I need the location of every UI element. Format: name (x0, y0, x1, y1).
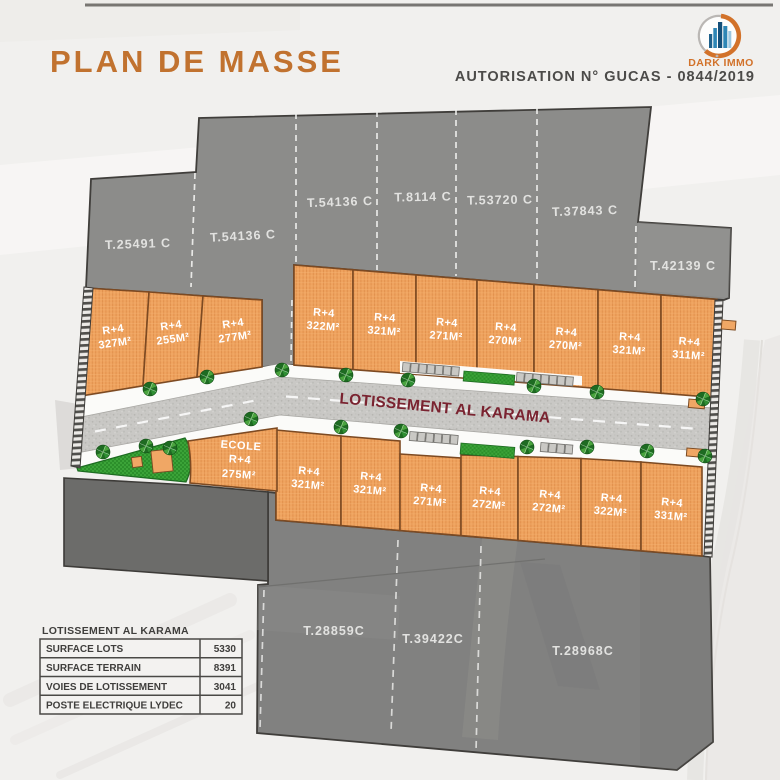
svg-text:R+4: R+4 (555, 326, 578, 340)
svg-text:R+4: R+4 (374, 311, 397, 325)
svg-text:R+4: R+4 (313, 307, 336, 321)
svg-text:271M²: 271M² (429, 329, 463, 343)
svg-text:R+4: R+4 (420, 482, 443, 496)
svg-text:275M²: 275M² (221, 468, 256, 482)
svg-text:T.8114 C: T.8114 C (394, 190, 452, 205)
svg-text:T.42139 C: T.42139 C (650, 259, 716, 273)
svg-text:T.39422C: T.39422C (402, 632, 464, 646)
svg-text:T.54136 C: T.54136 C (307, 194, 373, 210)
svg-text:AUTORISATION N° GUCAS - 0844/2: AUTORISATION N° GUCAS - 0844/2019 (455, 69, 755, 85)
svg-text:T.28968C: T.28968C (552, 644, 614, 658)
svg-text:270M²: 270M² (549, 339, 583, 353)
svg-text:R+4: R+4 (479, 485, 502, 499)
svg-text:321M²: 321M² (612, 344, 646, 358)
svg-text:R+4: R+4 (661, 496, 684, 510)
svg-text:R+4: R+4 (619, 331, 642, 345)
svg-text:VOIES DE LOTISSEMENT: VOIES DE LOTISSEMENT (46, 682, 167, 693)
svg-text:R+4: R+4 (228, 453, 251, 467)
svg-text:PLAN DE MASSE: PLAN DE MASSE (50, 44, 344, 79)
svg-text:SURFACE LOTS: SURFACE LOTS (46, 644, 124, 655)
svg-text:T.53720 C: T.53720 C (467, 192, 533, 207)
svg-text:311M²: 311M² (672, 349, 705, 363)
svg-text:DARK IMMO: DARK IMMO (688, 57, 753, 69)
svg-text:R+4: R+4 (678, 335, 701, 349)
svg-text:T.28859C: T.28859C (303, 624, 365, 638)
svg-text:20: 20 (225, 701, 237, 712)
svg-text:LOTISSEMENT AL KARAMA: LOTISSEMENT AL KARAMA (42, 625, 189, 637)
svg-text:R+4: R+4 (600, 492, 623, 506)
svg-text:T.25491 C: T.25491 C (105, 236, 171, 252)
svg-text:322M²: 322M² (306, 320, 340, 334)
svg-text:321M²: 321M² (367, 324, 401, 338)
svg-text:R+4: R+4 (495, 321, 518, 335)
svg-text:270M²: 270M² (488, 334, 522, 348)
svg-text:SURFACE TERRAIN: SURFACE TERRAIN (46, 663, 141, 674)
svg-text:3041: 3041 (214, 682, 237, 693)
svg-text:R+4: R+4 (360, 470, 383, 484)
svg-text:POSTE ELECTRIQUE LYDEC: POSTE ELECTRIQUE LYDEC (46, 701, 183, 712)
svg-text:R+4: R+4 (436, 316, 459, 330)
svg-text:5330: 5330 (214, 644, 237, 655)
svg-text:R+4: R+4 (539, 488, 562, 502)
svg-text:R+4: R+4 (298, 465, 321, 479)
svg-text:T.37843 C: T.37843 C (552, 203, 618, 219)
svg-text:8391: 8391 (214, 663, 237, 674)
